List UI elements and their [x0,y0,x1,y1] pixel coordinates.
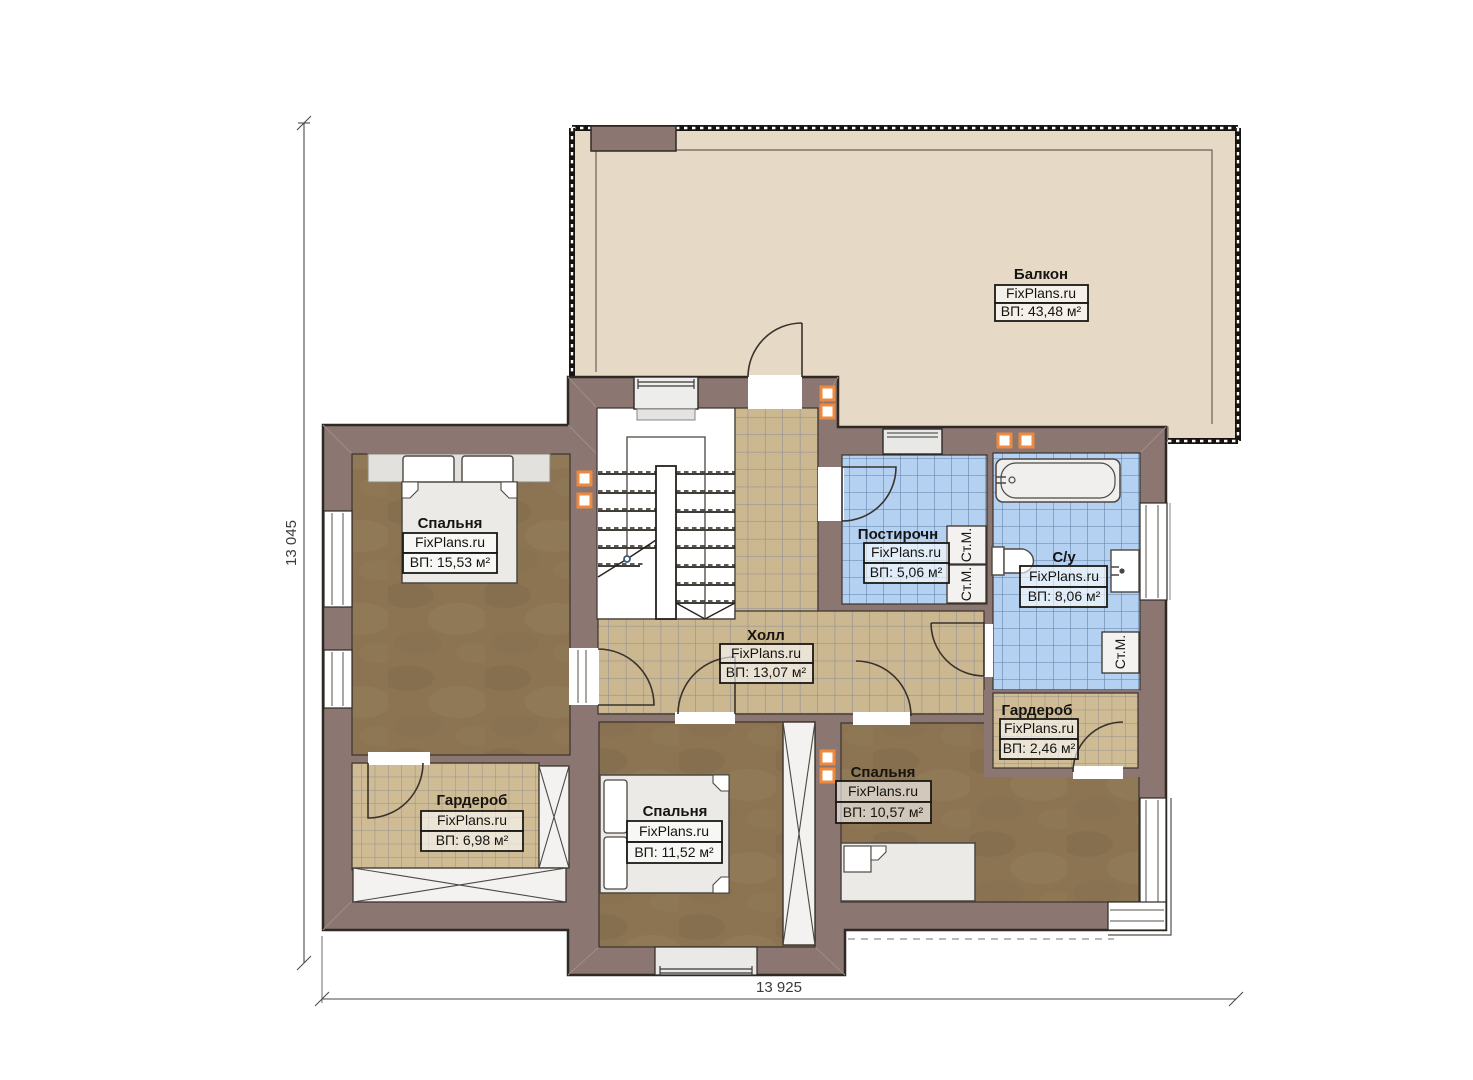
svg-text:ВП: 15,53 м²: ВП: 15,53 м² [410,554,491,570]
svg-text:FixPlans.ru: FixPlans.ru [639,823,709,839]
svg-text:Спальня: Спальня [643,803,708,820]
svg-text:ВП: 13,07 м²: ВП: 13,07 м² [726,664,807,680]
svg-text:FixPlans.ru: FixPlans.ru [1029,568,1099,584]
svg-text:Ст.М.: Ст.М. [958,567,974,601]
svg-text:ВП: 6,98 м²: ВП: 6,98 м² [436,832,509,848]
svg-text:Спальня: Спальня [418,515,483,532]
svg-text:13 925: 13 925 [756,979,802,996]
svg-text:FixPlans.ru: FixPlans.ru [871,544,941,560]
svg-text:ВП: 11,52 м²: ВП: 11,52 м² [634,844,714,860]
svg-text:FixPlans.ru: FixPlans.ru [1006,285,1076,301]
svg-text:FixPlans.ru: FixPlans.ru [848,783,918,799]
svg-text:ВП: 8,06 м²: ВП: 8,06 м² [1028,588,1101,604]
svg-text:ВП: 43,48 м²: ВП: 43,48 м² [1001,303,1082,319]
svg-text:FixPlans.ru: FixPlans.ru [415,534,485,550]
svg-text:Ст.М.: Ст.М. [1112,635,1128,669]
svg-text:Гардероб: Гардероб [437,792,508,809]
svg-text:13 045: 13 045 [283,520,300,566]
svg-text:FixPlans.ru: FixPlans.ru [731,645,801,661]
svg-text:FixPlans.ru: FixPlans.ru [437,812,507,828]
svg-text:ВП: 10,57 м²: ВП: 10,57 м² [843,804,924,820]
svg-text:С/у: С/у [1052,549,1076,566]
svg-text:ВП: 5,06 м²: ВП: 5,06 м² [870,564,943,580]
svg-text:Ст.М.: Ст.М. [958,528,974,562]
svg-text:Постирочн: Постирочн [858,526,938,543]
svg-text:Гардероб: Гардероб [1002,702,1073,719]
svg-text:FixPlans.ru: FixPlans.ru [1004,720,1074,736]
svg-text:Балкон: Балкон [1014,266,1068,283]
svg-text:Холл: Холл [747,627,785,644]
svg-text:ВП: 2,46 м²: ВП: 2,46 м² [1003,740,1076,756]
svg-text:Спальня: Спальня [851,764,916,781]
